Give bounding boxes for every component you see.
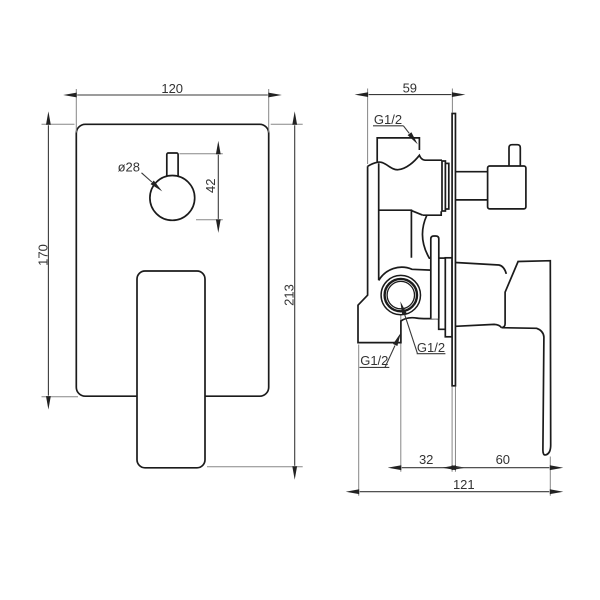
svg-text:42: 42: [203, 179, 218, 193]
svg-text:60: 60: [496, 452, 510, 467]
svg-text:G1/2: G1/2: [417, 340, 445, 355]
svg-text:213: 213: [281, 284, 296, 306]
svg-text:32: 32: [419, 452, 433, 467]
svg-text:G1/2: G1/2: [360, 353, 388, 368]
svg-text:G1/2: G1/2: [374, 112, 402, 127]
svg-text:59: 59: [403, 81, 417, 96]
svg-text:170: 170: [35, 244, 50, 266]
svg-text:ø28: ø28: [118, 160, 140, 175]
svg-text:120: 120: [161, 81, 183, 96]
svg-text:121: 121: [453, 477, 475, 492]
